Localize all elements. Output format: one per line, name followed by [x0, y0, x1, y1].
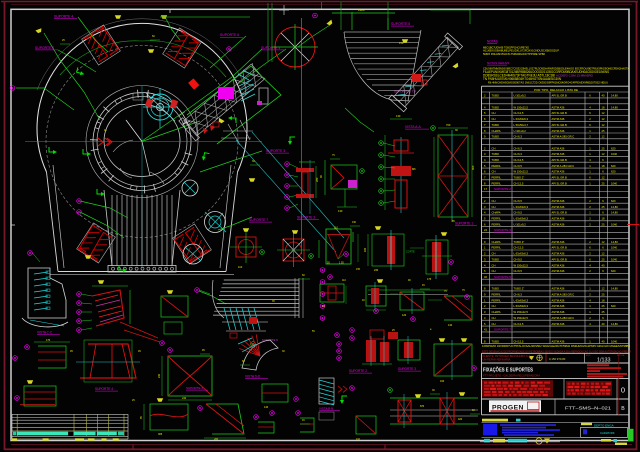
- svg-text:SUPORTE 4: SUPORTE 4: [54, 15, 73, 19]
- svg-text:CH 9,5: CH 9,5: [514, 164, 523, 168]
- svg-text:PERFIL: PERFIL: [492, 293, 502, 297]
- svg-text:CHAPA: CHAPA: [492, 129, 501, 133]
- svg-text:280: 280: [315, 177, 319, 182]
- svg-text:12: 12: [602, 287, 605, 291]
- svg-text:25: 25: [602, 310, 605, 314]
- svg-text:PERFIL: PERFIL: [492, 164, 502, 168]
- svg-text:PERFIL: PERFIL: [492, 217, 502, 221]
- svg-text:0,150 970,80: 0,150 970,80: [549, 357, 566, 361]
- svg-text:CH 6,3: CH 6,3: [514, 146, 523, 150]
- svg-text:POR TIPO, RELACAO LISTA DE: POR TIPO, RELACAO LISTA DE: [534, 88, 578, 92]
- svg-text:PERFIL: PERFIL: [492, 181, 502, 185]
- svg-text:25: 25: [602, 257, 605, 261]
- svg-text:L 63x63x6,3: L 63x63x6,3: [514, 117, 529, 121]
- svg-text:API 5L GR.B: API 5L GR.B: [552, 211, 567, 215]
- svg-text:TUBO: TUBO: [492, 94, 499, 98]
- svg-text:ASTM A36: ASTM A36: [552, 199, 565, 203]
- svg-text:18: 18: [602, 164, 605, 168]
- svg-text:ASTM A36: ASTM A36: [552, 129, 565, 133]
- svg-text:110: 110: [356, 438, 361, 441]
- svg-text:CH 12,5: CH 12,5: [514, 181, 524, 185]
- svg-text:L 63x63x6,3: L 63x63x6,3: [514, 205, 529, 209]
- svg-text:ASTM A36: ASTM A36: [552, 269, 565, 273]
- svg-text:24: 24: [484, 228, 487, 232]
- svg-text:180: 180: [364, 247, 367, 252]
- svg-text:W 150x22,5: W 150x22,5: [514, 105, 529, 109]
- svg-text:CH: CH: [492, 269, 496, 273]
- svg-text:1040: 1040: [611, 181, 617, 185]
- svg-text:SUPORTE 5: SUPORTE 5: [391, 22, 410, 26]
- svg-text:40: 40: [602, 263, 605, 267]
- svg-text:25: 25: [602, 293, 605, 297]
- svg-text:U 101x9,2: U 101x9,2: [514, 94, 527, 98]
- svg-text:ASTM A36: ASTM A36: [552, 339, 565, 343]
- svg-text:API 5L GR.B: API 5L GR.B: [552, 111, 567, 115]
- svg-text:SUPORTE 7: SUPORTE 7: [249, 218, 268, 222]
- svg-text:ASTM A36: ASTM A36: [552, 310, 565, 314]
- svg-text:1/133: 1/133: [597, 357, 611, 363]
- svg-text:150: 150: [352, 221, 357, 224]
- svg-text:18: 18: [602, 105, 605, 109]
- svg-text:VISTA B-B: VISTA B-B: [319, 406, 333, 410]
- svg-text:12: 12: [602, 252, 605, 256]
- svg-text:ASTM A36: ASTM A36: [552, 298, 565, 302]
- svg-text:240: 240: [182, 397, 187, 400]
- svg-text:CHAPA: CHAPA: [492, 310, 501, 314]
- svg-text:1040: 1040: [611, 339, 617, 343]
- svg-text:32: 32: [484, 275, 487, 279]
- svg-text:ASTM A36: ASTM A36: [552, 105, 565, 109]
- svg-text:ASTM A36: ASTM A36: [552, 322, 565, 326]
- svg-text:SUPORTE 1: SUPORTE 1: [455, 222, 473, 226]
- svg-text:SUPORTE 7: SUPORTE 7: [494, 328, 511, 332]
- svg-text:SUPORTE 5: SUPORTE 5: [494, 275, 511, 279]
- svg-text:110: 110: [334, 227, 338, 230]
- svg-text:VISTA D-D: VISTA D-D: [245, 375, 261, 379]
- svg-text:VISTA C-C: VISTA C-C: [37, 331, 53, 335]
- svg-text:TUBO 2": TUBO 2": [514, 287, 525, 291]
- svg-text:TUBO: TUBO: [492, 135, 499, 139]
- svg-text:25: 25: [602, 304, 605, 308]
- svg-text:240: 240: [158, 373, 161, 378]
- svg-text:CH: CH: [492, 146, 496, 150]
- svg-text:5MRX RNLH6F35HCXLTS9M4RL0CDTPF: 5MRX RNLH6F35HCXLTS9M4RL0CDTPF5ME SPB2: [483, 52, 545, 56]
- svg-text:CH 12,5: CH 12,5: [514, 158, 524, 162]
- svg-text:120: 120: [402, 314, 407, 317]
- svg-text:NOTAS: NOTAS: [487, 40, 498, 44]
- svg-text:1040: 1040: [611, 222, 617, 226]
- svg-text:TUBO: TUBO: [492, 105, 499, 109]
- svg-text:API 5L GR.B: API 5L GR.B: [552, 246, 567, 250]
- svg-text:CADWORK: CADWORK: [600, 431, 615, 435]
- svg-text:CHAPA: CHAPA: [492, 211, 501, 215]
- svg-text:700: 700: [446, 123, 451, 127]
- svg-text:SUPORTE 4: SUPORTE 4: [95, 387, 113, 391]
- svg-text:TUBO 2": TUBO 2": [514, 176, 525, 180]
- svg-text:L 63x63x6,3: L 63x63x6,3: [514, 252, 529, 256]
- svg-text:CH: CH: [492, 199, 496, 203]
- svg-text:ASTM A36: ASTM A36: [552, 240, 565, 244]
- svg-text:W 150x22,5: W 150x22,5: [514, 316, 529, 320]
- svg-text:API 5L GR.B: API 5L GR.B: [552, 257, 567, 261]
- svg-text:CH 9,5: CH 9,5: [514, 199, 523, 203]
- svg-text:305: 305: [158, 433, 163, 436]
- svg-text:SUPORTE 6: SUPORTE 6: [220, 33, 239, 37]
- svg-text:CH 9,5: CH 9,5: [514, 269, 523, 273]
- svg-text:TUBO: TUBO: [492, 152, 499, 156]
- svg-text:SUPORTE 3: SUPORTE 3: [266, 149, 285, 153]
- svg-text:ASTM A-283 GR.C: ASTM A-283 GR.C: [552, 135, 575, 139]
- svg-text:API 5L GR.B: API 5L GR.B: [552, 176, 567, 180]
- svg-text:TUBO: TUBO: [492, 257, 499, 261]
- svg-text:SUPORTE 3: SUPORTE 3: [398, 367, 416, 371]
- svg-text:18: 18: [602, 217, 605, 221]
- svg-text:25: 25: [602, 146, 605, 150]
- svg-text:TUBO: TUBO: [492, 339, 499, 343]
- svg-text:155: 155: [356, 268, 361, 271]
- svg-text:FIXAÇÕES E SUPORTES: FIXAÇÕES E SUPORTES: [483, 367, 533, 374]
- svg-text:ESTE DESENHO E DE PROPRIEDADE: ESTE DESENHO E DE PROPRIEDADE DA PETROBR…: [482, 349, 631, 353]
- svg-text:TUBO: TUBO: [492, 287, 499, 291]
- svg-text:SUPORTE 4: SUPORTE 4: [186, 386, 203, 390]
- svg-text:140: 140: [264, 406, 269, 409]
- svg-text:ASTM A36: ASTM A36: [552, 263, 565, 267]
- svg-text:R6 4NNCHDHSGMGS0907AS 1N61C72D: R6 4NNCHDHSGMGS0907AS 1N61C72D O635GS9FP…: [488, 81, 608, 85]
- svg-text:620: 620: [611, 146, 616, 150]
- svg-text:1 55: 1 55: [339, 262, 344, 265]
- svg-text:620: 620: [611, 199, 616, 203]
- svg-text:12: 12: [602, 123, 605, 127]
- svg-text:0: 0: [621, 386, 625, 395]
- svg-text:W 150x22,5: W 150x22,5: [514, 310, 529, 314]
- svg-text:1040: 1040: [611, 246, 617, 250]
- svg-text:API 5L GR.B: API 5L GR.B: [552, 158, 567, 162]
- svg-text:170: 170: [46, 339, 51, 342]
- svg-text:FTT PROJETO - CALDEIRA RECU: FTT PROJETO - CALDEIRA RECUPERADORA: [483, 374, 540, 378]
- svg-text:CH: CH: [492, 304, 496, 308]
- svg-text:CH 6,3: CH 6,3: [514, 293, 523, 297]
- svg-text:TUBO: TUBO: [492, 123, 499, 127]
- svg-text:CH: CH: [492, 170, 496, 174]
- svg-text:14,80: 14,80: [611, 211, 618, 215]
- svg-text:160: 160: [440, 380, 445, 383]
- svg-text:L 63x63x6,3: L 63x63x6,3: [514, 304, 529, 308]
- svg-text:12: 12: [602, 240, 605, 244]
- svg-text:U 101x9,2: U 101x9,2: [514, 222, 527, 226]
- svg-text:NOTAS GERAIS: NOTAS GERAIS: [487, 61, 509, 65]
- svg-text:ESC.: ESC.: [586, 355, 591, 357]
- svg-text:1DI9P4MO 43XRRR7UCT5TAL0CSAH3D: 1DI9P4MO 43XRRR7UCT5TAL0CSAH3DS502 SI9AN…: [482, 344, 630, 348]
- svg-text:25: 25: [602, 129, 605, 133]
- svg-text:CH 12,5: CH 12,5: [514, 246, 524, 250]
- svg-text:18: 18: [602, 298, 605, 302]
- svg-text:900: 900: [471, 165, 475, 170]
- svg-text:620: 620: [611, 170, 616, 174]
- svg-text:41: 41: [484, 328, 487, 332]
- svg-text:TUBO: TUBO: [492, 158, 499, 162]
- svg-text:25: 25: [602, 181, 605, 185]
- svg-text:40: 40: [602, 339, 605, 343]
- svg-text:DEPTO ENGA: DEPTO ENGA: [594, 423, 614, 427]
- svg-text:CORTE: CORTE: [406, 251, 415, 254]
- svg-text:ASTM A36: ASTM A36: [552, 170, 565, 174]
- svg-text:FTT–SMS–N–021: FTT–SMS–N–021: [565, 405, 612, 410]
- svg-text:1040: 1040: [611, 257, 617, 261]
- svg-text:CH: CH: [492, 117, 496, 121]
- svg-text:PERFIL: PERFIL: [492, 246, 502, 250]
- svg-text:ASTM A36: ASTM A36: [552, 117, 565, 121]
- svg-text:CH: CH: [492, 316, 496, 320]
- svg-text:CH: CH: [492, 111, 496, 115]
- svg-text:12: 12: [602, 111, 605, 115]
- svg-text:ASTM A36: ASTM A36: [552, 217, 565, 221]
- svg-text:280: 280: [214, 438, 219, 441]
- svg-text:1040: 1040: [611, 152, 617, 156]
- svg-text:ASTM A36: ASTM A36: [552, 252, 565, 256]
- svg-text:150: 150: [399, 41, 404, 45]
- svg-text:14,80: 14,80: [611, 205, 618, 209]
- svg-text:620: 620: [611, 164, 616, 168]
- svg-text:ASTM A36: ASTM A36: [552, 152, 565, 156]
- svg-text:870: 870: [420, 405, 425, 408]
- svg-text:ASTM A36: ASTM A36: [552, 146, 565, 150]
- svg-text:14,80: 14,80: [611, 105, 618, 109]
- svg-text:CH 6,3: CH 6,3: [514, 135, 523, 139]
- svg-text:SUPORTE 5 T.P.: SUPORTE 5 T.P.: [394, 90, 417, 94]
- svg-text:12: 12: [602, 117, 605, 121]
- svg-text:1120: 1120: [358, 8, 365, 12]
- svg-text:ASTM A36: ASTM A36: [552, 205, 565, 209]
- svg-text:API 5L GR.B: API 5L GR.B: [552, 94, 567, 98]
- svg-text:SUPORTE 2: SUPORTE 2: [494, 187, 511, 191]
- svg-text:PERFIL: PERFIL: [492, 298, 502, 302]
- svg-text:420: 420: [458, 418, 463, 421]
- svg-text:ASTM A-283 GR.C: ASTM A-283 GR.C: [552, 316, 575, 320]
- svg-text:CHAPA: CHAPA: [492, 240, 501, 244]
- svg-text:API 5L GR.B: API 5L GR.B: [552, 181, 567, 185]
- svg-text:CLIENTE: PETROLEO BRASILEIRO S: CLIENTE: PETROLEO BRASILEIRO S.A.: [483, 354, 532, 358]
- svg-text:SUPORTE 1: SUPORTE 1: [261, 46, 280, 50]
- svg-text:620: 620: [611, 304, 616, 308]
- svg-text:175: 175: [427, 278, 432, 281]
- svg-text:CH 6,3: CH 6,3: [514, 152, 523, 156]
- svg-text:SUPORTE 3: SUPORTE 3: [494, 228, 511, 232]
- svg-text:W 150x22,5: W 150x22,5: [514, 263, 529, 267]
- svg-text:ASTM A36: ASTM A36: [552, 304, 565, 308]
- svg-text:12: 12: [602, 176, 605, 180]
- svg-text:40: 40: [602, 94, 605, 98]
- svg-text:CH 12,5: CH 12,5: [514, 339, 524, 343]
- svg-text:API 5L GR.B: API 5L GR.B: [552, 123, 567, 127]
- svg-text:CH: CH: [492, 263, 496, 267]
- svg-text:CH 12,5: CH 12,5: [514, 322, 524, 326]
- svg-text:UN-REPAR REFINARIA: UN-REPAR REFINARIA: [483, 358, 511, 362]
- svg-text:ASTM A36: ASTM A36: [552, 287, 565, 291]
- svg-text:U 101x9,2: U 101x9,2: [514, 129, 527, 133]
- svg-text:40: 40: [602, 322, 605, 326]
- svg-text:ASTM A-283 GR.C: ASTM A-283 GR.C: [552, 293, 575, 297]
- svg-text:14,80: 14,80: [611, 240, 618, 244]
- svg-text:SUPORTE 3: SUPORTE 3: [297, 216, 315, 220]
- svg-text:L 50x50x4,7: L 50x50x4,7: [514, 123, 529, 127]
- svg-text:VISTA A-A: VISTA A-A: [405, 125, 422, 129]
- svg-text:CH 9,5: CH 9,5: [514, 211, 523, 215]
- svg-text:SUPORTE 2: SUPORTE 2: [349, 369, 367, 373]
- svg-text:110: 110: [342, 279, 346, 282]
- svg-text:PERFIL: PERFIL: [492, 176, 502, 180]
- svg-text:W 150x22,5: W 150x22,5: [514, 170, 529, 174]
- svg-text:130: 130: [396, 114, 401, 118]
- svg-text:25: 25: [602, 222, 605, 226]
- svg-text:ASTM A36: ASTM A36: [552, 222, 565, 226]
- svg-text:620: 620: [611, 269, 616, 273]
- svg-text:L 63x63x6,3: L 63x63x6,3: [514, 217, 529, 221]
- svg-text:12: 12: [602, 135, 605, 139]
- svg-text:FOLHA: FOLHA: [617, 354, 625, 357]
- svg-text:14,80: 14,80: [611, 94, 618, 98]
- svg-text:SUPORTE 2: SUPORTE 2: [35, 46, 54, 50]
- svg-text:130: 130: [338, 209, 343, 213]
- svg-text:B: B: [621, 406, 625, 412]
- svg-text:14,80: 14,80: [611, 322, 618, 326]
- svg-text:TUBO 2": TUBO 2": [514, 240, 525, 244]
- svg-text:12: 12: [602, 152, 605, 156]
- svg-text:PERFIL: PERFIL: [492, 222, 502, 226]
- svg-text:CH 9,5: CH 9,5: [514, 257, 523, 261]
- svg-text:CH: CH: [492, 322, 496, 326]
- svg-text:CH: CH: [492, 205, 496, 209]
- svg-text:CH: CH: [492, 252, 496, 256]
- svg-text:ASTM A-283 GR.C: ASTM A-283 GR.C: [552, 164, 575, 168]
- svg-text:M6: M6: [412, 167, 416, 171]
- svg-text:140: 140: [448, 324, 453, 327]
- svg-text:110: 110: [238, 265, 243, 269]
- svg-text:ACDEF2 COM 13 MM ERG: ACDEF2 COM 13 MM ERG: [556, 74, 594, 78]
- svg-text:CH 12,5: CH 12,5: [514, 111, 524, 115]
- svg-text:L 63x63x6,3: L 63x63x6,3: [514, 298, 529, 302]
- svg-text:25: 25: [602, 205, 605, 209]
- svg-text:17: 17: [484, 187, 487, 191]
- svg-text:14,80: 14,80: [611, 287, 618, 291]
- svg-text:230: 230: [374, 269, 379, 272]
